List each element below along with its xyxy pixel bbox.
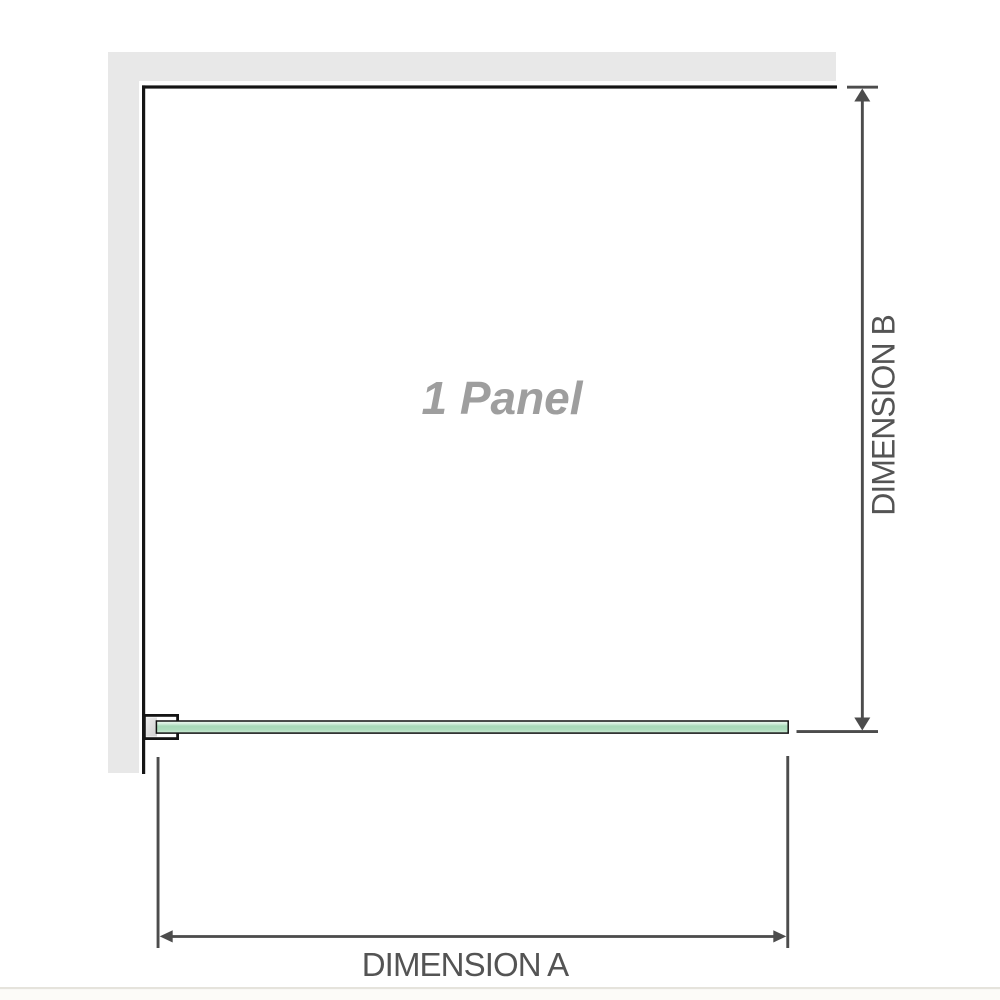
svg-text:DIMENSION B: DIMENSION B [866, 315, 902, 516]
svg-text:DIMENSION A: DIMENSION A [362, 946, 569, 983]
svg-text:1 Panel: 1 Panel [421, 372, 583, 424]
